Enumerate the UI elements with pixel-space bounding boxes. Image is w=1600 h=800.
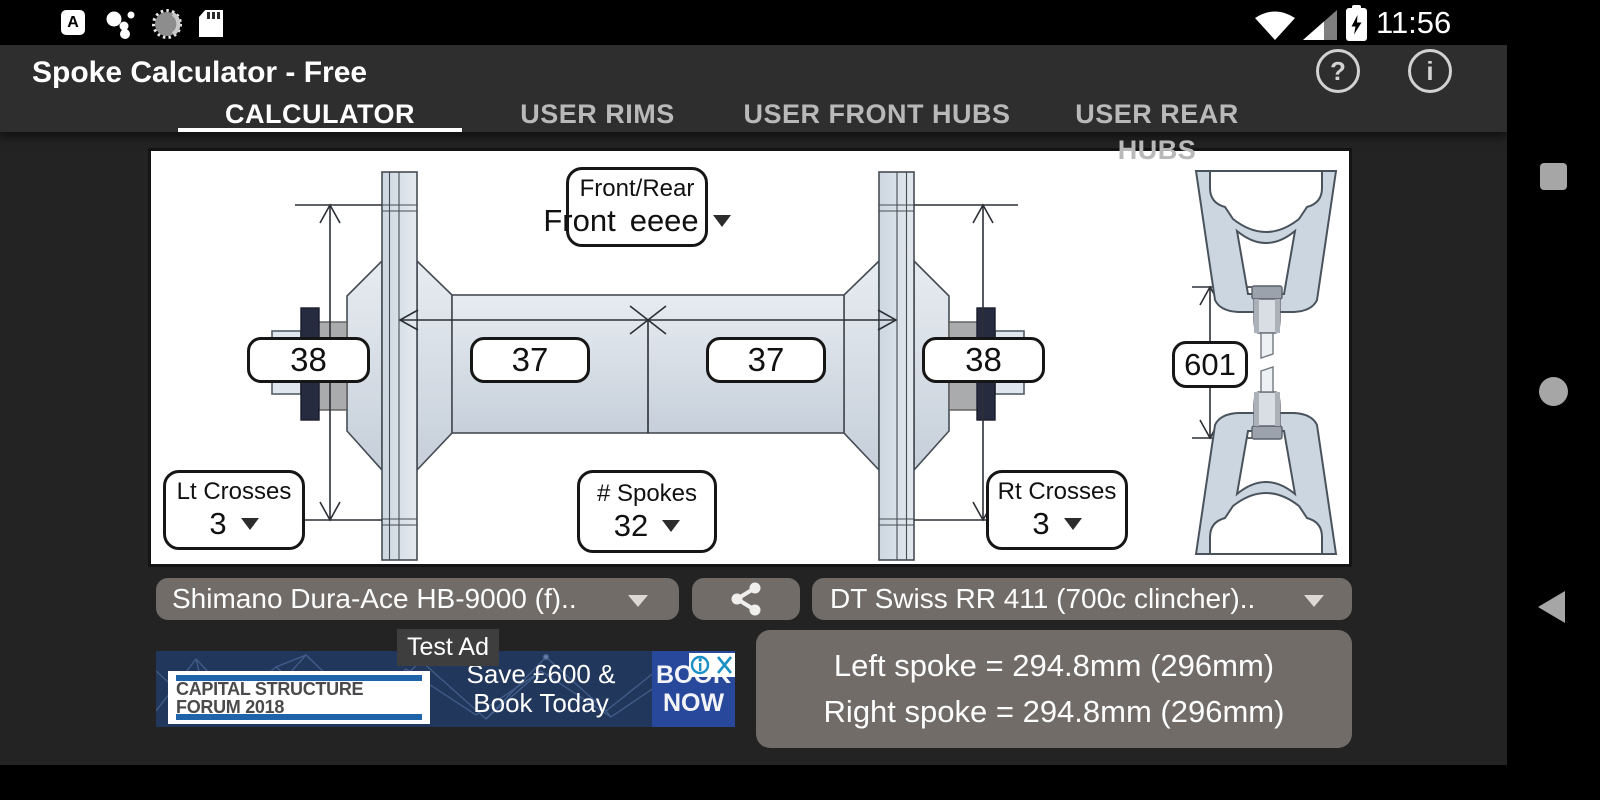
- tab-user-front-hubs[interactable]: USER FRONT HUBS: [742, 96, 1012, 132]
- info-glyph: i: [1426, 56, 1433, 87]
- app-bar: Spoke Calculator - Free ? i CALCULATOR U…: [0, 45, 1507, 132]
- chevron-down-icon: [662, 520, 680, 532]
- right-crosses-dropdown[interactable]: Rt Crosses 3: [986, 470, 1128, 550]
- chevron-down-icon: [628, 595, 648, 607]
- test-ad-badge: Test Ad: [397, 629, 499, 666]
- left-flange-diameter-label: 38: [247, 337, 370, 383]
- status-bar: A 11:56: [0, 0, 1600, 45]
- ad-cta-line2: NOW: [663, 689, 724, 717]
- left-spoke-result: Left spoke = 294.8mm (296mm): [834, 648, 1274, 684]
- share-button[interactable]: [692, 578, 800, 620]
- loading-spinner-icon: [151, 8, 183, 40]
- chevron-down-icon: [1064, 518, 1082, 530]
- android-nav-bar: [1507, 45, 1600, 800]
- right-flange-diameter-label: 38: [922, 337, 1045, 383]
- front-rear-caption: Front/Rear: [580, 175, 695, 203]
- back-button-icon[interactable]: [1538, 591, 1565, 623]
- app-letter-badge-icon: A: [61, 10, 85, 35]
- front-rear-dropdown[interactable]: Front/Rear Front eeee: [566, 167, 708, 247]
- right-crosses-value: 3: [1032, 506, 1049, 542]
- spoke-nipple: [1252, 286, 1282, 439]
- bottom-black-strip: [0, 765, 1600, 800]
- left-crosses-caption: Lt Crosses: [177, 478, 292, 506]
- ad-choices[interactable]: [689, 653, 735, 677]
- assistant-dots-icon: [103, 9, 139, 39]
- tab-user-rear-hubs[interactable]: USER REAR HUBS: [1040, 96, 1274, 132]
- hub-diagram-panel: 38 37 37 38 601 Front/Rear Front eeee Lt…: [148, 148, 1352, 567]
- chevron-down-icon: [713, 215, 731, 227]
- left-crosses-dropdown[interactable]: Lt Crosses 3: [163, 470, 305, 550]
- right-crosses-caption: Rt Crosses: [998, 478, 1117, 506]
- right-spoke-result: Right spoke = 294.8mm (296mm): [824, 694, 1285, 730]
- clock: 11:56: [1376, 5, 1451, 41]
- spoke-count-dropdown[interactable]: # Spokes 32: [577, 470, 717, 553]
- spoke-count-caption: # Spokes: [597, 480, 697, 508]
- tab-calculator[interactable]: CALCULATOR: [178, 96, 462, 132]
- recents-button-icon[interactable]: [1540, 163, 1567, 190]
- battery-charging-icon: [1346, 5, 1367, 41]
- cell-signal-icon: [1302, 9, 1338, 41]
- page-title: Spoke Calculator - Free: [32, 56, 367, 90]
- ad-logo-bottom-rule: [176, 714, 422, 720]
- help-glyph: ?: [1330, 56, 1346, 87]
- wifi-icon: [1252, 9, 1298, 41]
- spoke-count-value: 32: [614, 508, 648, 544]
- spoke-results-panel: Left spoke = 294.8mm (296mm) Right spoke…: [756, 630, 1352, 748]
- info-icon[interactable]: i: [1408, 49, 1452, 93]
- ad-logo-card: CAPITAL STRUCTURE FORUM 2018: [168, 671, 430, 724]
- left-center-to-flange-label: 37: [470, 337, 590, 383]
- right-center-to-flange-label: 37: [706, 337, 826, 383]
- share-icon: [729, 581, 763, 617]
- help-icon[interactable]: ?: [1316, 49, 1360, 93]
- rim-select-value: DT Swiss RR 411 (700c clincher)..: [830, 583, 1255, 615]
- home-button-icon[interactable]: [1539, 377, 1568, 406]
- rim-select[interactable]: DT Swiss RR 411 (700c clincher)..: [812, 578, 1352, 620]
- chevron-down-icon: [241, 518, 259, 530]
- active-tab-underline: [178, 128, 462, 132]
- left-crosses-value: 3: [209, 506, 226, 542]
- sd-card-icon: [199, 10, 223, 37]
- ad-close-icon[interactable]: [718, 657, 731, 673]
- front-rear-value: Front: [543, 203, 615, 239]
- chevron-down-icon: [1304, 595, 1324, 607]
- ad-offer-line2: Book Today: [473, 689, 608, 718]
- hub-select-value: Shimano Dura-Ace HB-9000 (f)..: [172, 583, 577, 615]
- hub-select[interactable]: Shimano Dura-Ace HB-9000 (f)..: [156, 578, 679, 620]
- tab-user-rims[interactable]: USER RIMS: [500, 96, 695, 132]
- rim-erd-label: 601: [1172, 341, 1248, 388]
